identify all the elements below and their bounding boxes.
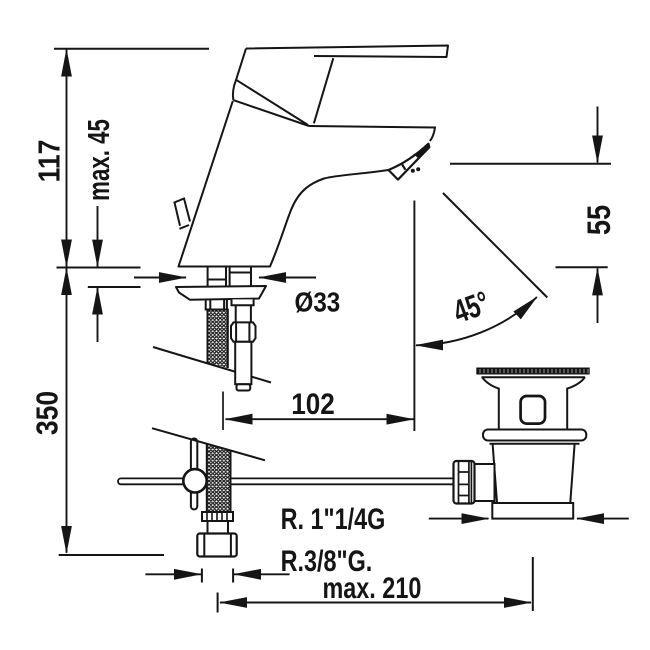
svg-text:55: 55 [582,205,618,235]
svg-text:Ø33: Ø33 [295,288,341,318]
svg-text:max. 45: max. 45 [82,119,116,201]
svg-text:102: 102 [291,387,335,420]
svg-text:R. 1"1/4G: R. 1"1/4G [281,502,386,535]
svg-text:350: 350 [31,391,65,435]
svg-text:117: 117 [33,140,67,183]
svg-text:max. 210: max. 210 [323,571,422,604]
